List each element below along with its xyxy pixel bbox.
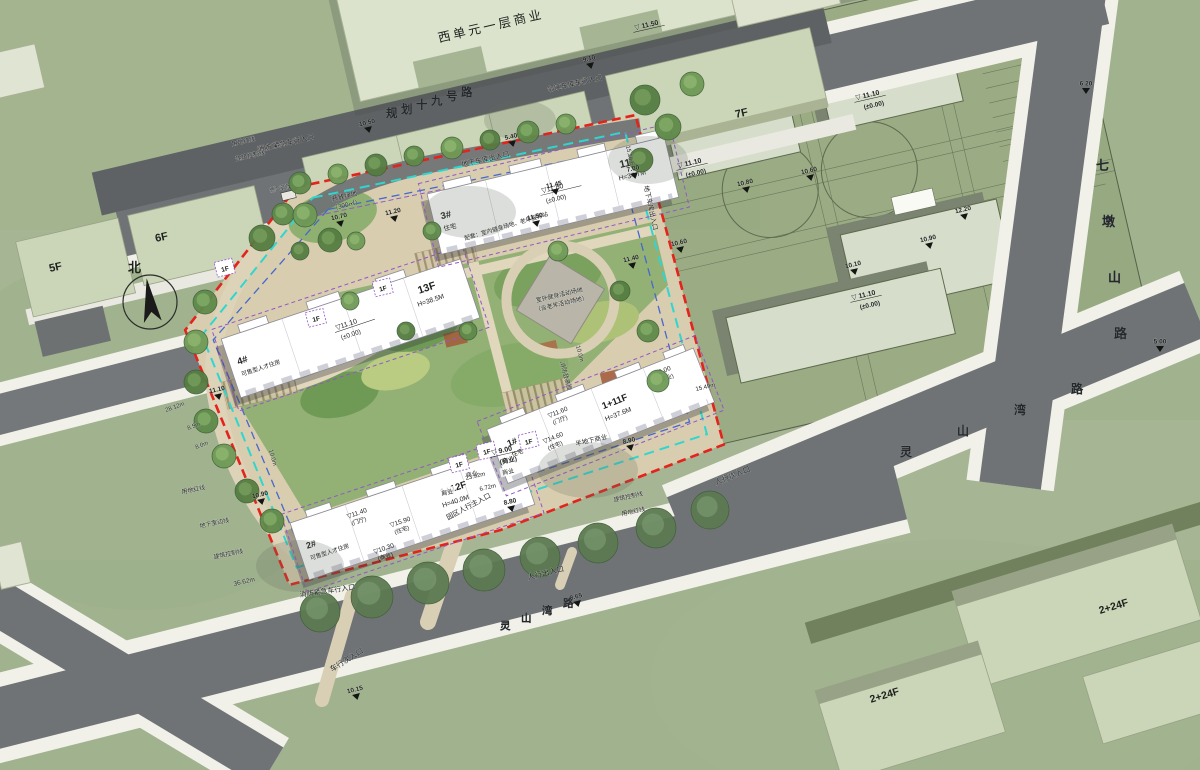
svg-text:5.00: 5.00 xyxy=(1154,339,1167,346)
tree xyxy=(184,370,208,394)
road-name-char: 灵 xyxy=(499,620,511,632)
tree xyxy=(328,164,348,184)
tree xyxy=(184,330,208,354)
road-name-char: 湾 xyxy=(1014,402,1026,417)
road-name-char: 灵 xyxy=(900,444,913,459)
tree xyxy=(423,222,441,240)
tree xyxy=(289,172,311,194)
road-name-char: 湾 xyxy=(542,604,553,617)
tree xyxy=(347,232,365,250)
tree xyxy=(407,562,449,604)
tree xyxy=(249,225,275,251)
tree xyxy=(212,444,236,468)
north-label: 北 xyxy=(128,260,141,275)
site-plan-canvas: 5F 6F 8F 7F 西单元一层商业 2+24F 2+24F xyxy=(0,0,1200,770)
road-name-char: 山 xyxy=(521,612,532,625)
tree xyxy=(630,85,660,115)
tree xyxy=(548,241,568,261)
site-plan-drawing: 5F 6F 8F 7F 西单元一层商业 2+24F 2+24F xyxy=(0,0,1200,770)
road-name-char: 规 xyxy=(386,106,398,120)
tree xyxy=(655,114,681,140)
canopy-shadow xyxy=(538,442,638,498)
tree xyxy=(397,322,415,340)
tree xyxy=(441,137,463,159)
road-name-char: 路 xyxy=(1114,326,1128,341)
tree xyxy=(463,549,505,591)
road-name-char: 路 xyxy=(461,85,473,99)
tree xyxy=(365,154,387,176)
tree xyxy=(680,72,704,96)
tree xyxy=(556,114,576,134)
svg-text:6.20: 6.20 xyxy=(1080,81,1093,88)
tree xyxy=(318,228,342,252)
tree xyxy=(291,242,309,260)
tree xyxy=(637,320,659,342)
tree xyxy=(647,370,669,392)
tree xyxy=(404,146,424,166)
tree xyxy=(272,203,294,225)
road-name-char: 七 xyxy=(1096,158,1109,173)
tree xyxy=(636,508,676,548)
road-name-char: 十 xyxy=(416,98,428,112)
road-name-char: 墩 xyxy=(1102,214,1116,229)
tree xyxy=(459,322,477,340)
tree xyxy=(578,523,618,563)
tree xyxy=(480,130,500,150)
road-name-char: 划 xyxy=(401,102,413,116)
road-name-char: 九 xyxy=(430,93,443,107)
tree xyxy=(517,121,539,143)
road-name-char: 山 xyxy=(1108,270,1121,285)
tree xyxy=(351,576,393,618)
tree xyxy=(260,509,284,533)
tree xyxy=(691,491,729,529)
tree xyxy=(610,281,630,301)
tree xyxy=(193,290,217,314)
tree xyxy=(293,203,317,227)
canopy-shadow xyxy=(256,540,344,592)
road-name-char: 路 xyxy=(1071,381,1084,396)
road-name-char: 山 xyxy=(957,423,969,438)
tree xyxy=(341,292,359,310)
tree xyxy=(194,409,218,433)
road-name-char: 号 xyxy=(446,90,458,103)
